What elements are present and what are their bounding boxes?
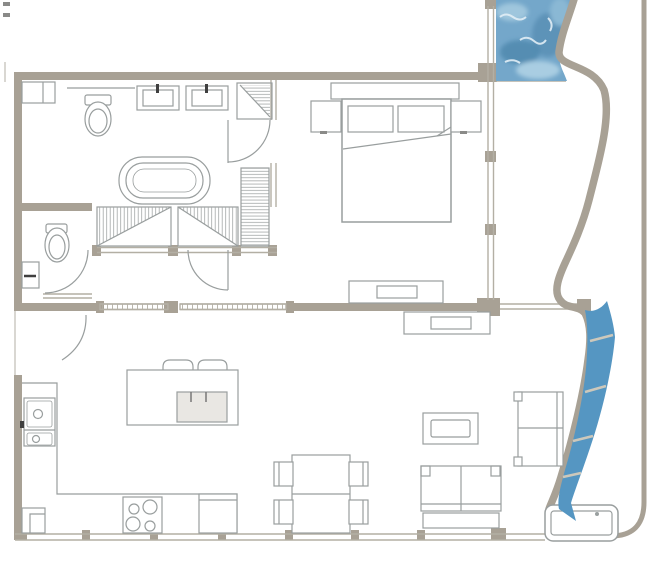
sliding-door: [100, 304, 168, 310]
headboard: [331, 83, 459, 99]
corner-cabinet: [22, 508, 45, 533]
kitchen: [20, 360, 238, 533]
mullion-post: [351, 530, 359, 540]
sliding-door: [180, 304, 286, 310]
dining-chair: [274, 462, 293, 486]
bathtub: [119, 157, 210, 204]
linen-closet: [241, 168, 269, 246]
nightstand: [311, 101, 341, 132]
top-wall: [14, 72, 478, 80]
dining-chair: [274, 500, 293, 524]
glazing-post: [485, 151, 496, 162]
powder-room-wall: [14, 203, 92, 211]
left-wall-lower: [14, 375, 22, 535]
handle-icon: [320, 131, 327, 134]
floor-plan-canvas: [0, 0, 667, 576]
faucet-icon: [156, 84, 159, 93]
dresser: [349, 281, 443, 303]
mid-wall-left: [14, 303, 100, 311]
door-swing-arc: [188, 250, 228, 290]
sofa: [421, 466, 501, 528]
glazing-post: [485, 0, 496, 9]
faucet-icon: [205, 84, 208, 93]
glazing-post: [485, 224, 496, 235]
kitchen-island: [127, 360, 238, 425]
armrest: [514, 392, 522, 401]
armrest: [514, 457, 522, 466]
furniture: [20, 82, 618, 541]
dining-chair: [349, 462, 368, 486]
window-walls: [5, 6, 577, 540]
bar-stool: [198, 360, 227, 370]
floor-plan-drawing: [0, 0, 667, 576]
kitchen-sink: [20, 398, 55, 446]
mid-wall-right: [292, 303, 480, 311]
hall-bedroom-door: [188, 250, 228, 290]
bathroom-door: [228, 120, 270, 163]
door-swing-arc: [228, 120, 270, 162]
plunge-tub: [545, 505, 618, 541]
armchair: [514, 392, 563, 466]
dining-area: [274, 455, 368, 533]
hall-post: [92, 245, 101, 256]
cooktop: [123, 497, 162, 533]
powder-room: [22, 224, 88, 293]
media-console: [404, 312, 490, 334]
faucet-icon: [20, 421, 24, 428]
cooktop-outline: [123, 497, 162, 533]
bar-stool: [163, 360, 193, 370]
toilet: [85, 95, 111, 136]
handle-icon: [460, 131, 467, 134]
sofa-back: [423, 513, 499, 528]
dishwasher: [199, 494, 237, 533]
outer-boundary-wall: [598, 0, 644, 536]
left-wall-upper: [14, 72, 22, 311]
bedroom: [311, 83, 481, 303]
mullion-post: [82, 530, 90, 540]
vanity-double-sink: [137, 84, 228, 110]
nightstand: [451, 101, 481, 132]
armchair-body: [518, 392, 563, 466]
survey-tick: [3, 2, 10, 6]
hall-post: [268, 245, 277, 256]
hall-post: [232, 245, 241, 256]
island-sink: [177, 392, 227, 422]
mullion-post: [417, 530, 425, 540]
double-bed: [342, 99, 451, 222]
entry-door-swing-arc: [62, 315, 86, 360]
drain-icon: [595, 512, 599, 516]
hall-post: [168, 245, 178, 256]
shower-closet: [237, 83, 272, 119]
bath-cabinet: [22, 82, 55, 103]
water-glint: [516, 61, 560, 79]
wardrobe-right: [178, 207, 238, 246]
wardrobe-left: [97, 207, 171, 246]
dining-chair: [349, 500, 368, 524]
water-shade: [500, 40, 540, 64]
survey-tick: [3, 13, 10, 17]
